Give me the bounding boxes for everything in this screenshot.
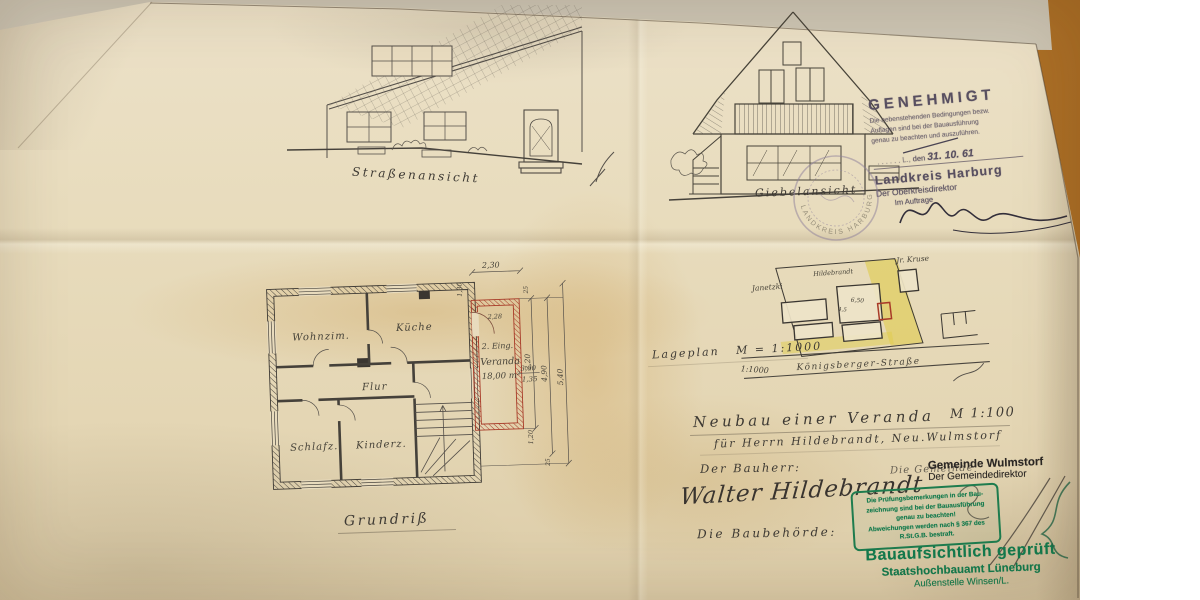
- room-label-bedroom: Schlafz.: [290, 441, 339, 454]
- pencil-flourish: [953, 361, 983, 383]
- neighbor-top-name: Jr. Kruse: [894, 254, 930, 265]
- approval-signature: [895, 178, 1080, 240]
- veranda-entrance-label: 2. Eing.: [481, 341, 514, 351]
- dim-small-bottom: 25: [545, 458, 552, 467]
- authority-label: Die Baubehörde:: [697, 525, 837, 541]
- project-scale: M 1:100: [950, 405, 1016, 422]
- balcony-railing: [735, 104, 853, 134]
- floor-plan-label: Grundriß: [344, 511, 430, 530]
- green-paraph-signature: [1028, 478, 1080, 562]
- builder-label: Der Bauherr:: [700, 460, 801, 476]
- street-elevation-drawing: [272, 0, 602, 190]
- photo-of-blueprint: Straßenansicht Giebelansicht GENEHMI: [0, 0, 1080, 600]
- entry-steps: [689, 136, 721, 194]
- dim-left-a: 1,30: [455, 282, 464, 297]
- chimney-block: [419, 291, 430, 299]
- floor-plan-drawing: Wohnzim. Küche Flur Schlafz. Kinderz. 2.…: [257, 244, 596, 525]
- room-label-kitchen: Küche: [395, 322, 433, 334]
- review-box-stamp: Die Prüfungsbemerkungen in der Bau- zeic…: [850, 483, 1001, 552]
- site-inner-scale: 1:1000: [740, 364, 769, 375]
- upper-windows: [759, 68, 824, 103]
- attic-window: [783, 42, 801, 65]
- dim-bottom: 1,20: [527, 430, 536, 445]
- veranda-label: Veranda: [480, 356, 520, 368]
- approval-stamp-den: den: [912, 153, 925, 163]
- room-label-children: Kinderz.: [355, 439, 407, 452]
- site-plan-drawing: Janetzki Hildebrandt Jr. Kruse 6,50 4,5 …: [737, 238, 999, 413]
- veranda-door-opening: [471, 312, 479, 336]
- room-label-living: Wohnzim.: [292, 331, 350, 344]
- neighbor-left-name: Janetzki: [750, 282, 784, 293]
- dormer-window-band: [372, 46, 452, 76]
- screenshot: Straßenansicht Giebelansicht GENEHMI: [0, 0, 1200, 600]
- entrance-door: [519, 110, 563, 173]
- veranda-area-label: 18,00 m²: [482, 371, 521, 382]
- approval-stamp-date: 31. 10. 61: [927, 147, 975, 163]
- svg-text:1,35: 1,35: [522, 375, 538, 384]
- bush: [671, 150, 707, 176]
- vertical-fold-crease: [628, 0, 648, 600]
- dim-top: 2,30: [481, 260, 500, 270]
- site-dim-a: 6,50: [851, 297, 865, 305]
- dim-left-b: 2,28: [487, 312, 503, 321]
- room-label-hall: Flur: [361, 381, 388, 393]
- dim-r2: 4,90: [539, 365, 549, 383]
- dim-r3: 5,40: [556, 368, 566, 385]
- neighbor-building-right: [939, 308, 979, 341]
- round-seal: LANDKREIS HARBURG: [786, 150, 886, 246]
- site-dim-b: 4,5: [837, 307, 848, 314]
- owner-name: Hildebrandt: [812, 267, 854, 278]
- dim-small-top: 25: [523, 286, 530, 295]
- dim-r1: 2,20: [523, 353, 533, 371]
- staircase: [415, 402, 474, 476]
